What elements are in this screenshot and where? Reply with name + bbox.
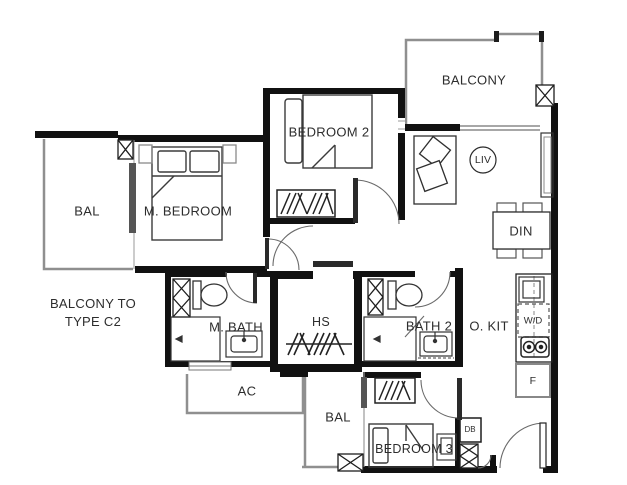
- room-label-bal-bottom: BAL: [325, 411, 350, 424]
- hs-door-opening: [313, 267, 353, 280]
- column-x-icon: [118, 140, 133, 159]
- balcony-type-note-line1: BALCONY TO: [50, 295, 136, 313]
- shaft-x-icon: [173, 279, 190, 317]
- appliance-label-washer-dryer: W/D: [524, 316, 542, 326]
- shaft-x-icon: [368, 279, 383, 315]
- appliance-label-db: DB: [464, 426, 475, 434]
- floorplan-drawing: [0, 0, 627, 485]
- room-label-bedroom-3: BEDROOM 3: [375, 443, 453, 456]
- balcony-type-note-line2: TYPE C2: [50, 313, 136, 331]
- balcony-type-note: BALCONY TO TYPE C2: [50, 295, 136, 331]
- m-bedroom-bed: [152, 147, 222, 240]
- br2-window: [398, 118, 405, 133]
- room-label-ac-ledge: AC: [238, 385, 257, 398]
- bedroom2-wardrobe: [277, 190, 335, 217]
- room-label-dining: DIN: [509, 225, 532, 238]
- room-label-bedroom-2: BEDROOM 2: [289, 126, 370, 139]
- bedroom3-wardrobe: [375, 378, 415, 403]
- room-label-bal-left: BAL: [74, 205, 99, 218]
- sofa: [414, 136, 456, 204]
- m-bath-basin: [226, 331, 262, 357]
- bath2-basin: [418, 332, 454, 358]
- shaft-x-icon: [460, 444, 478, 468]
- appliance-label-fridge: F: [530, 376, 537, 387]
- column-x-icon: [338, 454, 363, 471]
- column-x-icon: [536, 85, 554, 106]
- room-label-balcony: BALCONY: [442, 74, 506, 87]
- room-label-open-kitchen: O. KIT: [469, 320, 508, 333]
- floor-plan: BALCONY BAL M. BEDROOM BEDROOM 2 LIV DIN…: [0, 0, 627, 485]
- room-label-living: LIV: [475, 155, 491, 166]
- room-label-m-bedroom: M. BEDROOM: [144, 205, 232, 218]
- m-bath-toilet: [193, 281, 227, 309]
- room-label-hs: HS: [312, 316, 330, 329]
- room-label-bath-2: BATH 2: [406, 320, 452, 333]
- hob-icon: [521, 337, 549, 357]
- parapet-ticks: [494, 31, 544, 42]
- sink-icon: [519, 277, 544, 302]
- bath2-toilet: [388, 281, 422, 309]
- tv-console: [541, 133, 553, 197]
- m-bath-louvre: [189, 362, 231, 370]
- room-label-m-bath: M. BATH: [209, 321, 263, 334]
